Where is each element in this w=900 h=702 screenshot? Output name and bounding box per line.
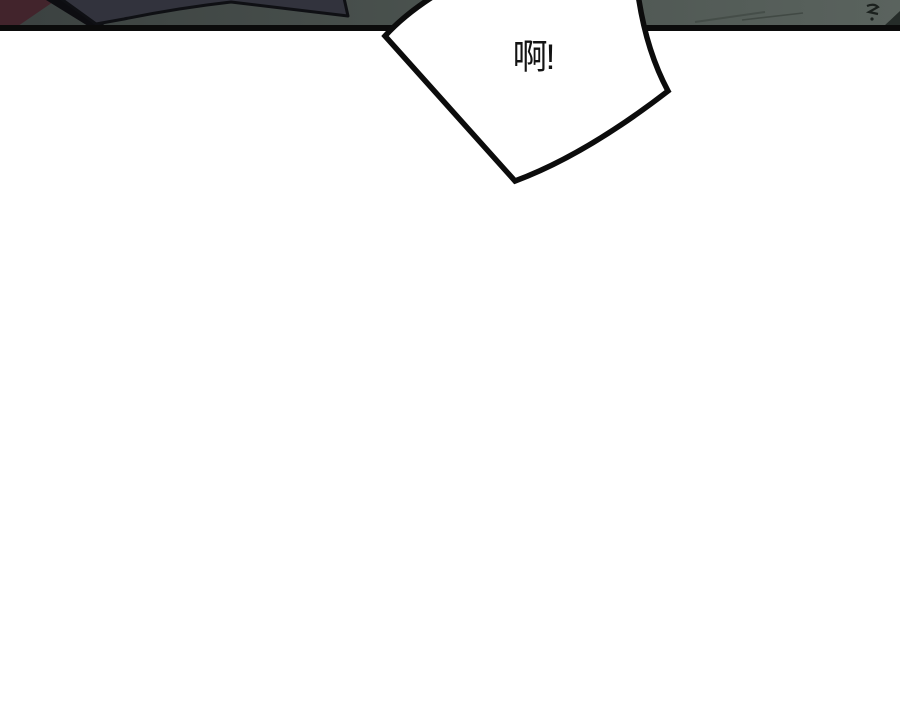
comic-page: 啊! [0,0,900,702]
speech-bubble-outline [385,0,668,181]
speech-bubble-text: 啊! [463,39,603,78]
speech-bubble [0,0,900,220]
